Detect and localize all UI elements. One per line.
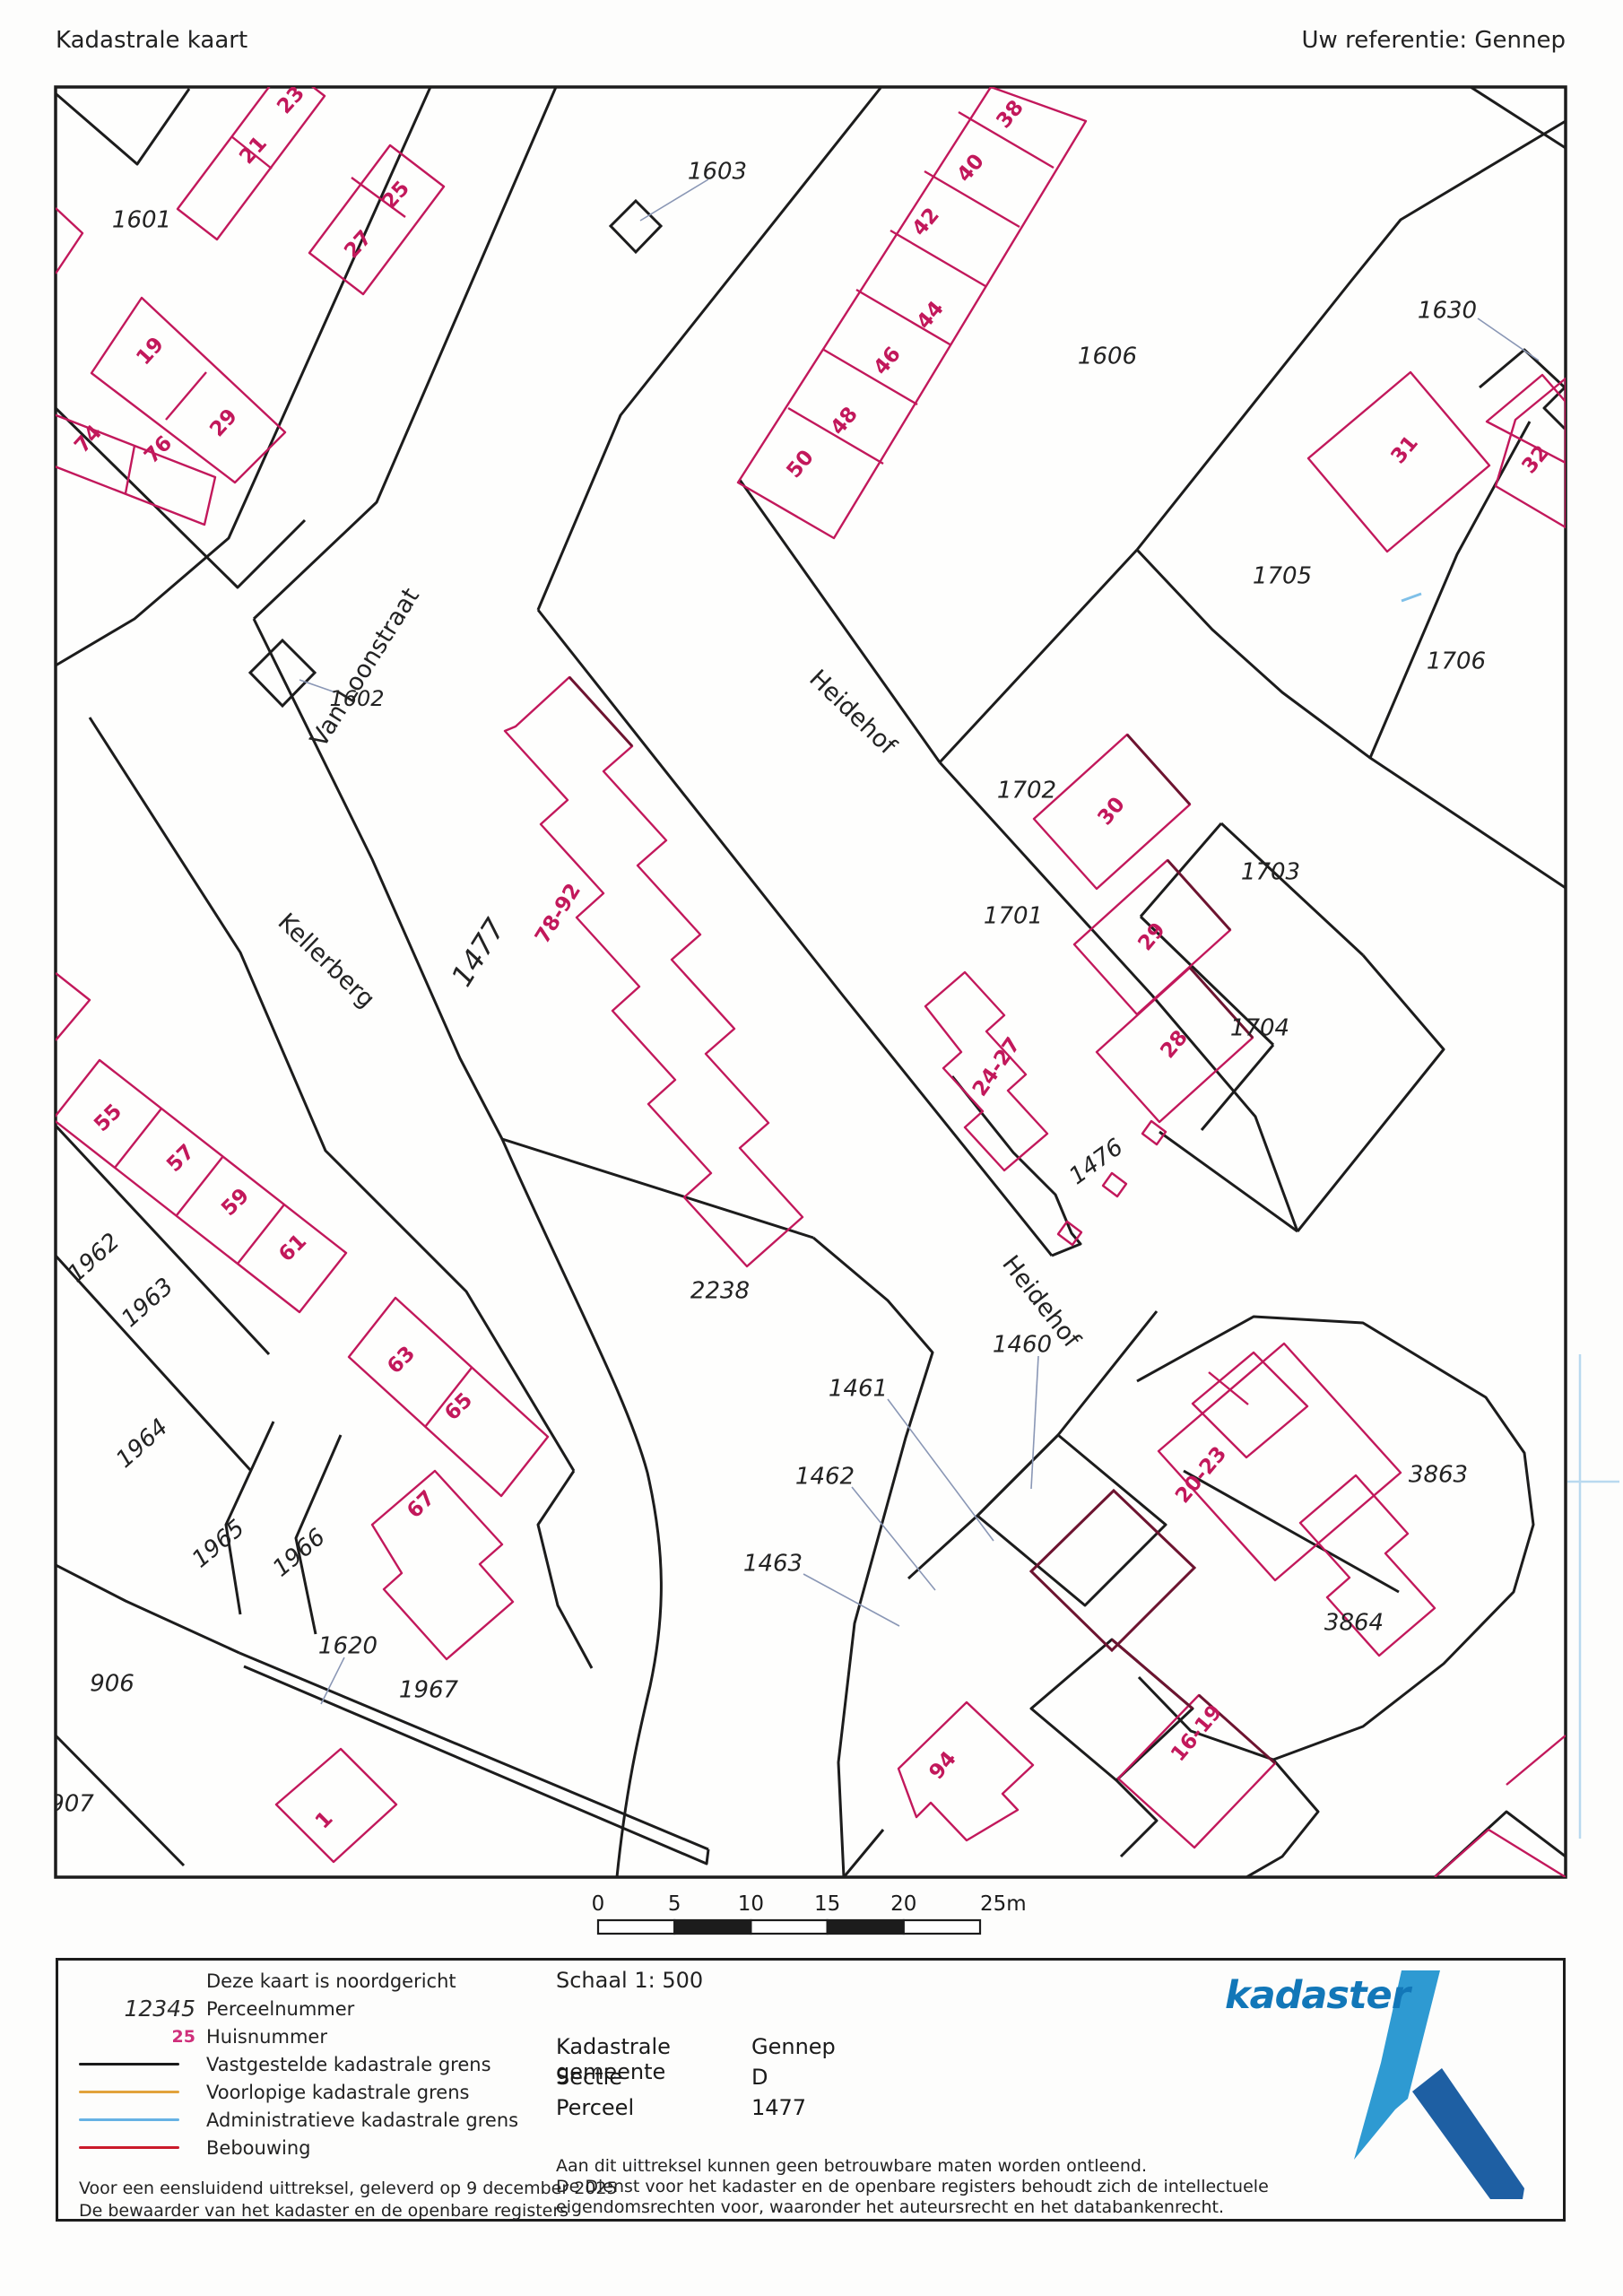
parcel-label-1620: 1620 [318, 1633, 378, 1660]
legend-item-1: 12345Perceelnummer [79, 1996, 545, 2023]
scale-tick-label: 0 [592, 1892, 605, 1916]
legend-footer-note: Voor een eensluidend uittreksel, gelever… [79, 2178, 618, 2222]
parcel-label-907: 907 [49, 1791, 94, 1818]
parcel-label-1462: 1462 [795, 1464, 855, 1491]
scale-tick-label: 20 [890, 1892, 916, 1916]
detail-label: Perceel [556, 2095, 634, 2120]
legend-line-swatch [79, 2091, 179, 2093]
legend-line-swatch [79, 2146, 179, 2149]
parcel-label-1703: 1703 [1241, 859, 1300, 886]
scale-tick-label: 10 [738, 1892, 764, 1916]
parcel-label-1601: 1601 [112, 207, 171, 234]
scale-tick-label: 25m [980, 1892, 1027, 1916]
scale-tick-label: 5 [668, 1892, 681, 1916]
parcel-label-1704: 1704 [1230, 1015, 1289, 1042]
parcel-label-1460: 1460 [993, 1332, 1052, 1359]
legend: Deze kaart is noordgericht12345Perceelnu… [79, 1968, 545, 2162]
parcel-label-1463: 1463 [743, 1551, 803, 1578]
disclaimer-line: De Dienst voor het kadaster en de openba… [556, 2177, 1269, 2197]
legend-line-swatch [79, 2118, 179, 2121]
cadastral-map: 1601160316061630170517061702170317011704… [0, 0, 1623, 2296]
detail-label: Sectie [556, 2065, 622, 2090]
disclaimer-text: Aan dit uittreksel kunnen geen betrouwba… [556, 2156, 1269, 2218]
parcel-label-3864: 3864 [1324, 1610, 1384, 1637]
legend-line-swatch [79, 2063, 179, 2066]
extract-details: Schaal 1: 500 Kadastrale gemeenteGennepS… [556, 1968, 1184, 1993]
kadaster-logo-text: kadaster [1225, 1973, 1410, 2018]
parcel-label-1606: 1606 [1078, 344, 1137, 370]
parcel-label-2238: 2238 [690, 1278, 750, 1305]
kadastrale-kaart-page: Kadastrale kaart Uw referentie: Gennep [0, 0, 1623, 2296]
legend-label: Vastgestelde kadastrale grens [206, 2054, 491, 2075]
parcel-label-1603: 1603 [688, 159, 747, 186]
legend-footer-line: De bewaarder van het kadaster en de open… [79, 2200, 618, 2222]
parcel-label-1701: 1701 [984, 903, 1043, 930]
scale-tick-label: 15 [814, 1892, 840, 1916]
parcel-label-1630: 1630 [1418, 298, 1477, 325]
disclaimer-line: Aan dit uittreksel kunnen geen betrouwba… [556, 2156, 1269, 2177]
legend-label: Bebouwing [206, 2137, 310, 2159]
parcel-label-1461: 1461 [829, 1376, 888, 1403]
scale-bar-segment [751, 1920, 827, 1934]
legend-label: Perceelnummer [206, 1998, 354, 2020]
scale-label: Schaal 1: 500 [556, 1968, 1184, 1993]
legend-item-4: Voorlopige kadastrale grens [79, 2079, 545, 2107]
legend-footer-line: Voor een eensluidend uittreksel, gelever… [79, 2178, 618, 2200]
detail-value: D [751, 2065, 768, 2090]
parcel-label-1705: 1705 [1253, 563, 1312, 590]
legend-item-6: Bebouwing [79, 2135, 545, 2162]
legend-sample: 25 [79, 2027, 195, 2047]
legend-sample: 12345 [79, 1996, 195, 2022]
legend-label: Huisnummer [206, 2026, 327, 2048]
parcel-label-1967: 1967 [399, 1677, 459, 1704]
scale-bar-segment [904, 1920, 980, 1934]
legend-item-5: Administratieve kadastrale grens [79, 2107, 545, 2135]
scale-bar-segment [828, 1920, 904, 1934]
parcel-label-906: 906 [90, 1671, 135, 1698]
detail-value: 1477 [751, 2095, 806, 2120]
parcel-label-1702: 1702 [997, 778, 1056, 804]
administrative-boundary-outside [1567, 1354, 1619, 1839]
scale-bar-segment [598, 1920, 674, 1934]
legend-item-3: Vastgestelde kadastrale grens [79, 2051, 545, 2079]
legend-label: Administratieve kadastrale grens [206, 2109, 518, 2131]
parcel-label-1706: 1706 [1427, 648, 1486, 675]
disclaimer-line: eigendomsrechten voor, waaronder het aut… [556, 2197, 1269, 2218]
scale-bar-segment [674, 1920, 751, 1934]
legend-item-2: 25Huisnummer [79, 2023, 545, 2051]
parcel-label-3863: 3863 [1409, 1462, 1468, 1489]
legend-label: Deze kaart is noordgericht [206, 1970, 456, 1992]
detail-value: Gennep [751, 2034, 836, 2059]
scale-bar: 0510152025m [592, 1892, 1027, 1934]
legend-label: Voorlopige kadastrale grens [206, 2082, 469, 2103]
legend-item-0: Deze kaart is noordgericht [79, 1968, 545, 1996]
